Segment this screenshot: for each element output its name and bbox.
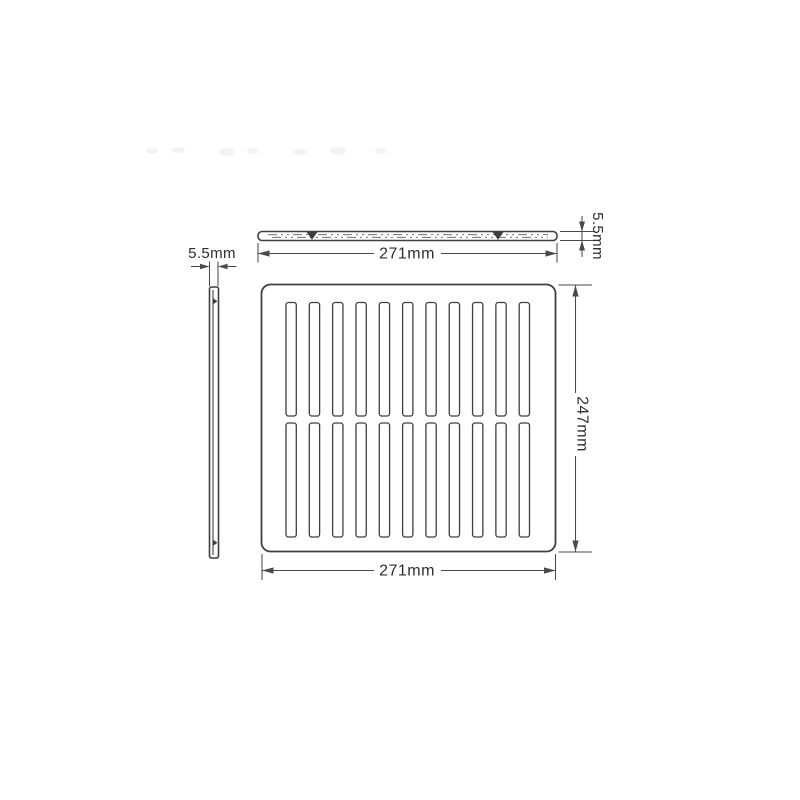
vent-slot [496,303,506,417]
vent-slot [333,303,343,417]
dimension-top-width: 271mm [258,243,557,263]
dimension-side-thickness: 5.5mm [188,245,236,286]
arrowhead [546,250,558,256]
arrowhead [579,222,585,232]
dimension-label-height: 247mm [574,396,591,452]
arrowhead [544,567,556,573]
side-view-outline [210,287,219,558]
countersink-notch-right [493,232,504,240]
top-edge-outline [258,232,557,241]
arrowhead [572,285,578,297]
vent-slot [473,423,483,537]
vent-slot [426,423,436,537]
countersink-notch-left [307,232,318,240]
drawing-canvas: 271mm 5.5mm 5.5mm 247mm [0,0,800,800]
vent-slot [309,303,319,417]
arrowhead [572,541,578,553]
front-view-outline [262,285,556,552]
arrowhead [258,250,270,256]
arrowhead [262,567,274,573]
dimension-label-bottom-width: 271mm [379,563,435,580]
arrowhead [200,264,210,270]
vent-slot [426,303,436,417]
vent-slot [286,303,296,417]
dimension-label-top-thickness: 5.5mm [589,212,606,260]
vent-slot [379,423,389,537]
slot-grid [286,303,530,538]
front-view [262,285,556,552]
dimension-bottom-width: 271mm [262,554,556,580]
vent-slot [496,423,506,537]
vent-slot [519,303,529,417]
side-view [210,287,219,558]
vent-slot [403,303,413,417]
watermark-smudge [146,147,387,156]
technical-drawing: 271mm 5.5mm 5.5mm 247mm [0,0,800,800]
vent-slot [333,423,343,537]
vent-slot [403,423,413,537]
side-countersink-mark-top [214,299,218,305]
side-countersink-mark-bottom [214,540,218,546]
vent-slot [449,423,459,537]
dimension-top-thickness: 5.5mm [560,212,606,260]
vent-slot [286,423,296,537]
vent-slot [473,303,483,417]
dimension-height: 247mm [559,285,593,552]
arrowhead [218,264,228,270]
dimension-label-side-thickness: 5.5mm [188,245,236,262]
vent-slot [356,303,366,417]
vent-slot [356,423,366,537]
vent-slot [449,303,459,417]
vent-slot [379,303,389,417]
top-edge-view [258,232,557,241]
vent-slot [519,423,529,537]
vent-slot [309,423,319,537]
arrowhead [579,241,585,251]
dimension-label-top-width: 271mm [379,246,435,263]
